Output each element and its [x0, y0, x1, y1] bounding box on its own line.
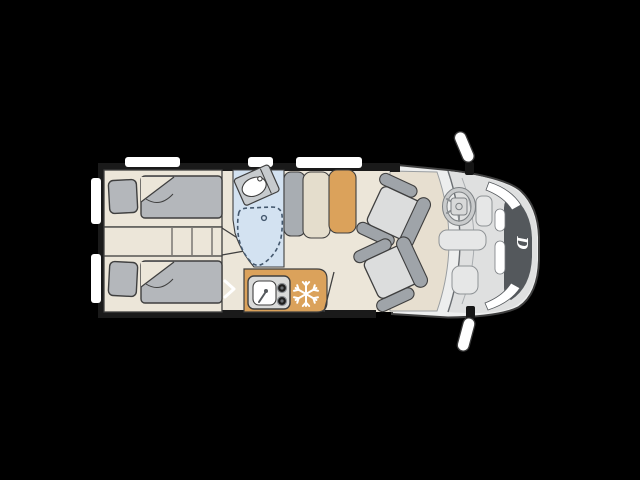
step-band [104, 227, 222, 256]
mirror-mount [466, 306, 475, 319]
window-top-3 [296, 157, 362, 168]
single-bed-top [104, 170, 222, 227]
horn-logo [456, 203, 462, 209]
hob-burner-1-ring [280, 286, 283, 289]
hob-burner-2-ring [280, 299, 283, 302]
wall-end-pillar [390, 163, 400, 172]
dash-panel-lower [452, 266, 478, 294]
pillow [108, 179, 138, 213]
grille-vent-upper [495, 209, 505, 231]
sideboard-cabinet [303, 172, 330, 238]
single-bed-bottom [104, 255, 222, 312]
grille-vent-lower [495, 241, 505, 274]
window-top-1 [125, 157, 180, 167]
rear-window-2 [91, 254, 101, 303]
pillow [108, 261, 138, 296]
mirror-mount [465, 162, 474, 175]
brand-logo: D [513, 235, 531, 249]
wardrobe [284, 172, 305, 236]
floorplan-stage: D [0, 0, 640, 480]
kitchen-block [244, 269, 327, 312]
rear-window-1 [91, 178, 101, 224]
dash-console [439, 230, 486, 250]
dinette-table [329, 170, 356, 233]
campervan-floorplan: D [0, 0, 640, 480]
dash-panel-side [476, 196, 492, 226]
